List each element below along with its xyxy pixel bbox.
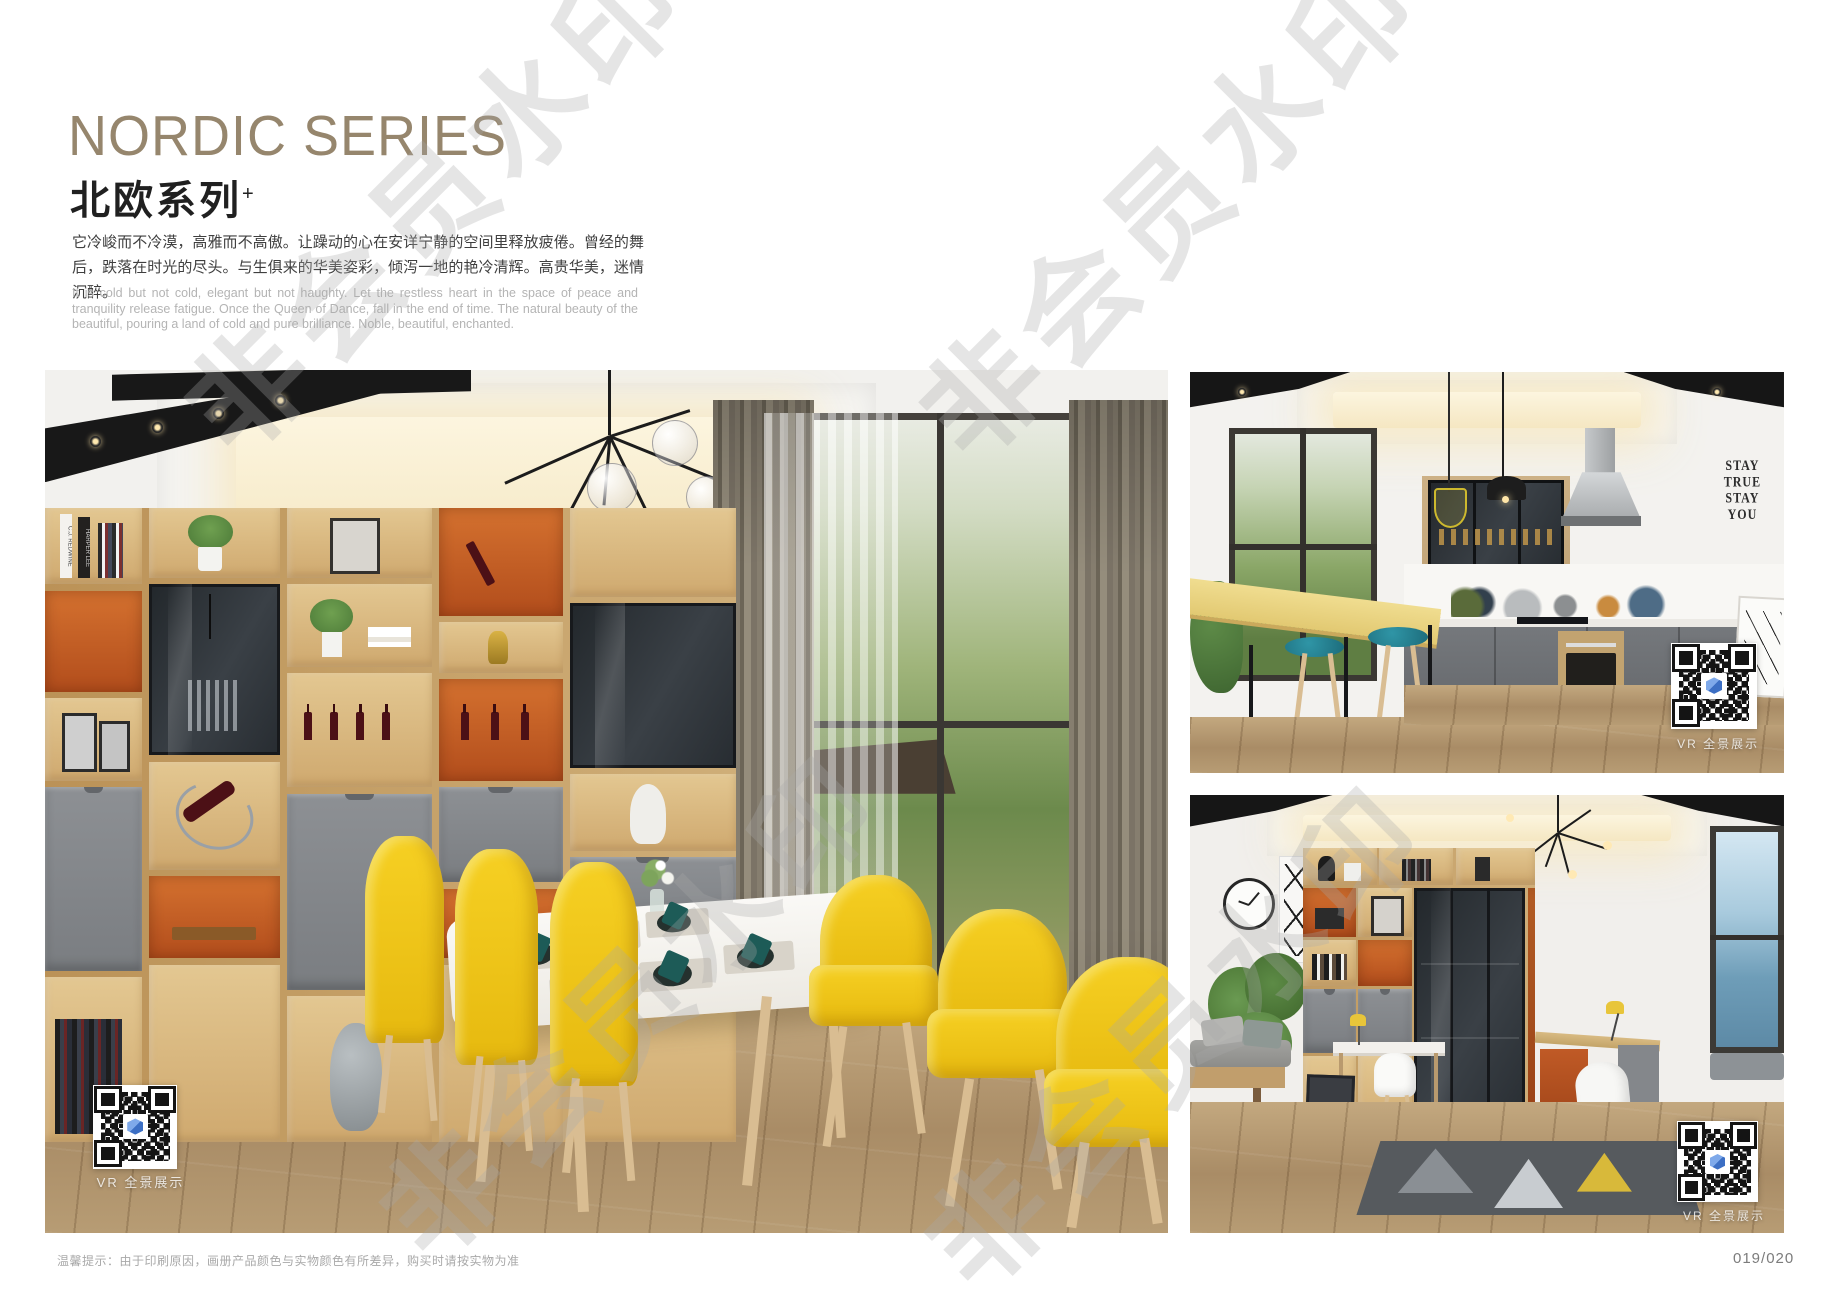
cooktop	[1517, 617, 1588, 623]
dining-chair	[550, 862, 638, 1086]
wall-decal: STAY TRUE STAY YOU	[1713, 458, 1772, 523]
vase	[1475, 857, 1491, 880]
wine-bottle	[382, 712, 390, 740]
place-setting	[645, 908, 710, 938]
window-sea-view	[1710, 826, 1784, 1054]
page-number: 019/020	[1733, 1250, 1794, 1267]
dining-armchair-seat	[927, 1009, 1073, 1078]
countertop	[1404, 619, 1784, 628]
vr-qr-code	[1677, 1121, 1758, 1202]
spotlight	[90, 436, 101, 447]
desk-chair	[1374, 1053, 1416, 1097]
trophy	[488, 631, 508, 663]
place-setting	[639, 958, 713, 993]
bulb	[1506, 814, 1514, 822]
range-hood-band	[1561, 516, 1641, 526]
wine-bottle	[491, 712, 499, 740]
photo-frame	[330, 518, 380, 574]
glass-display-cabinet	[1414, 888, 1525, 1137]
wall-clock	[1223, 878, 1275, 930]
desk-lamp	[1347, 1014, 1371, 1045]
qr-cube-logo	[123, 1114, 148, 1139]
catalog-page: NORDIC SERIES 北欧系列+ 它冷峻而不冷漠，高雅而不高傲。让躁动的心…	[0, 0, 1836, 1307]
qr-cube-logo	[1701, 673, 1727, 699]
vr-panorama-label: VR 全景展示	[1683, 1207, 1765, 1224]
photo-dining-room: C.J. REDWINE HARPER LEE	[45, 370, 1168, 1233]
window-seat-cushion	[1710, 1053, 1784, 1079]
dining-armchair-seat	[809, 965, 938, 1025]
glass-globe	[652, 420, 698, 466]
books	[1402, 859, 1432, 881]
photo-frame	[1371, 896, 1404, 936]
dining-chair	[365, 836, 444, 1043]
vr-qr-code	[93, 1085, 177, 1169]
subtitle-plus: +	[242, 183, 257, 205]
footer-disclaimer: 温馨提示：由于印刷原因，画册产品颜色与实物颜色有所差异，购买时请按实物为准	[57, 1252, 520, 1269]
bulb	[1603, 841, 1612, 850]
subtitle-text: 北欧系列	[70, 179, 242, 223]
bulb	[1568, 870, 1577, 879]
place-setting	[723, 941, 795, 975]
plant	[188, 515, 233, 548]
spotlight	[1713, 388, 1721, 396]
qr-cube-logo	[1705, 1150, 1729, 1174]
vase	[1344, 863, 1360, 881]
glass-globe	[587, 463, 637, 513]
bench-base	[1190, 1067, 1285, 1089]
wine-bottle	[465, 541, 495, 587]
photo-study-room: VR 全景展示	[1190, 795, 1784, 1233]
photo-kitchen: STAY TRUE STAY YOU	[1190, 372, 1784, 773]
description-english: It is cold but not cold, elegant but not…	[72, 286, 638, 333]
wine-bottle	[521, 712, 529, 740]
bar-stool	[1368, 627, 1427, 647]
desk-lamp	[1600, 1001, 1630, 1040]
page-subtitle: 北欧系列+	[70, 168, 257, 226]
counter-items	[1451, 581, 1689, 617]
dining-chair	[455, 849, 538, 1065]
spotlight	[1238, 388, 1246, 396]
ceiling-cove-light	[1333, 392, 1642, 428]
vr-qr-code	[1671, 643, 1757, 729]
plant	[310, 599, 354, 634]
wine-bottle	[356, 712, 364, 740]
book-spine: HARPER LEE	[78, 517, 90, 578]
vr-panorama-label: VR 全景展示	[97, 1172, 185, 1191]
vase	[1318, 856, 1336, 881]
pendant-in-cabinet	[209, 594, 211, 639]
area-rug	[1356, 1141, 1701, 1215]
wine-bottle	[330, 712, 338, 740]
dining-armchair-seat	[1044, 1069, 1168, 1147]
spotlight	[152, 422, 163, 433]
cushion	[1242, 1019, 1283, 1049]
sculpture	[630, 784, 666, 845]
wine-bottle	[461, 712, 469, 740]
books	[1312, 954, 1346, 980]
photo-frame	[62, 713, 97, 772]
pendant-light-cage	[1448, 372, 1450, 492]
pendant-light-dome	[1502, 372, 1504, 480]
book-spine: C.J. REDWINE	[60, 514, 72, 578]
range-hood	[1585, 428, 1615, 476]
wine-bottle	[304, 712, 312, 740]
page-title: NORDIC SERIES	[68, 104, 507, 168]
photo-frame	[99, 721, 130, 772]
bar-stool	[1285, 637, 1344, 657]
vr-panorama-label: VR 全景展示	[1677, 735, 1759, 752]
books	[1315, 908, 1345, 930]
